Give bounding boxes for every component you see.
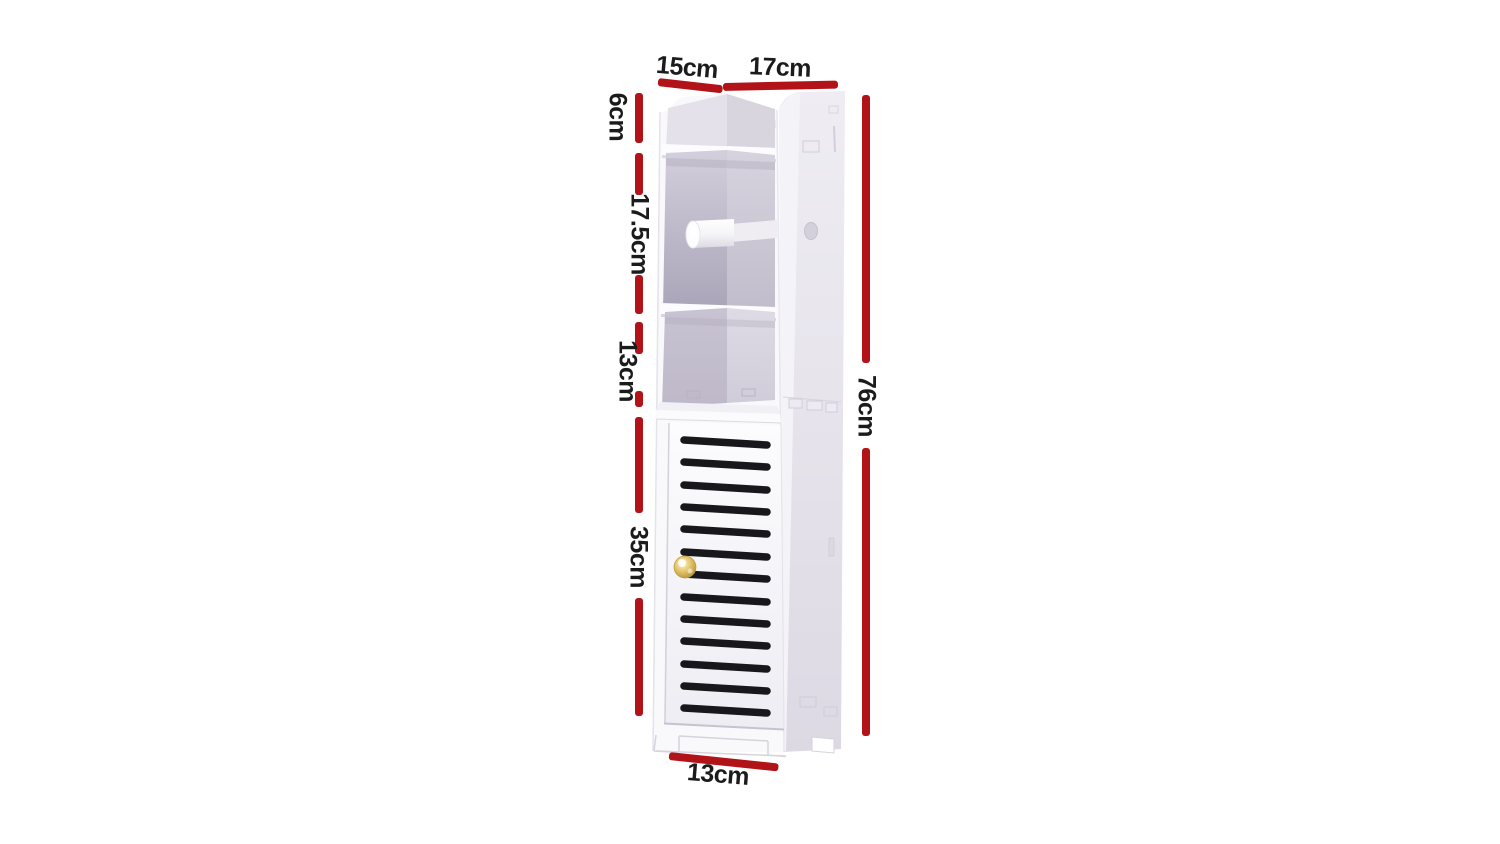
dim-label-top-depth: 17cm bbox=[749, 54, 812, 82]
dim-label-roll-compartment-height: 17.5cm bbox=[627, 193, 652, 275]
dim-line-door-a bbox=[635, 417, 643, 513]
door-knob bbox=[674, 556, 696, 578]
dim-label-top-opening-height: 6cm bbox=[605, 93, 630, 142]
side-joint-tab bbox=[789, 399, 802, 408]
cabinet-side-panel bbox=[779, 91, 845, 753]
side-groove bbox=[834, 126, 835, 152]
side-foot-cutout bbox=[812, 737, 834, 753]
dim-line-roll-compartment-a bbox=[635, 153, 643, 195]
dim-label-base-width: 13cm bbox=[686, 760, 750, 790]
dim-line-roll-compartment-b bbox=[635, 275, 643, 314]
dim-line-total-height-b bbox=[862, 448, 870, 736]
dim-line-top-opening bbox=[635, 93, 643, 143]
side-round-hole bbox=[805, 223, 818, 240]
side-joint-tab bbox=[826, 403, 837, 412]
product-dimension-diagram: 15cm 17cm 6cm 17.5cm 13cm 35cm 76cm 13cm bbox=[0, 0, 1500, 844]
middle-open-compartment bbox=[662, 308, 775, 407]
dim-label-door-height: 35cm bbox=[626, 526, 651, 588]
dim-line-total-height-a bbox=[862, 95, 870, 363]
side-joint-tab bbox=[807, 401, 822, 410]
louver-door bbox=[664, 422, 784, 729]
side-slot bbox=[829, 538, 834, 556]
dim-line-door-b bbox=[635, 598, 643, 716]
dim-label-total-height: 76cm bbox=[854, 375, 879, 437]
dim-label-open-shelf-height: 13cm bbox=[615, 340, 640, 402]
dim-label-top-width: 15cm bbox=[655, 53, 719, 83]
